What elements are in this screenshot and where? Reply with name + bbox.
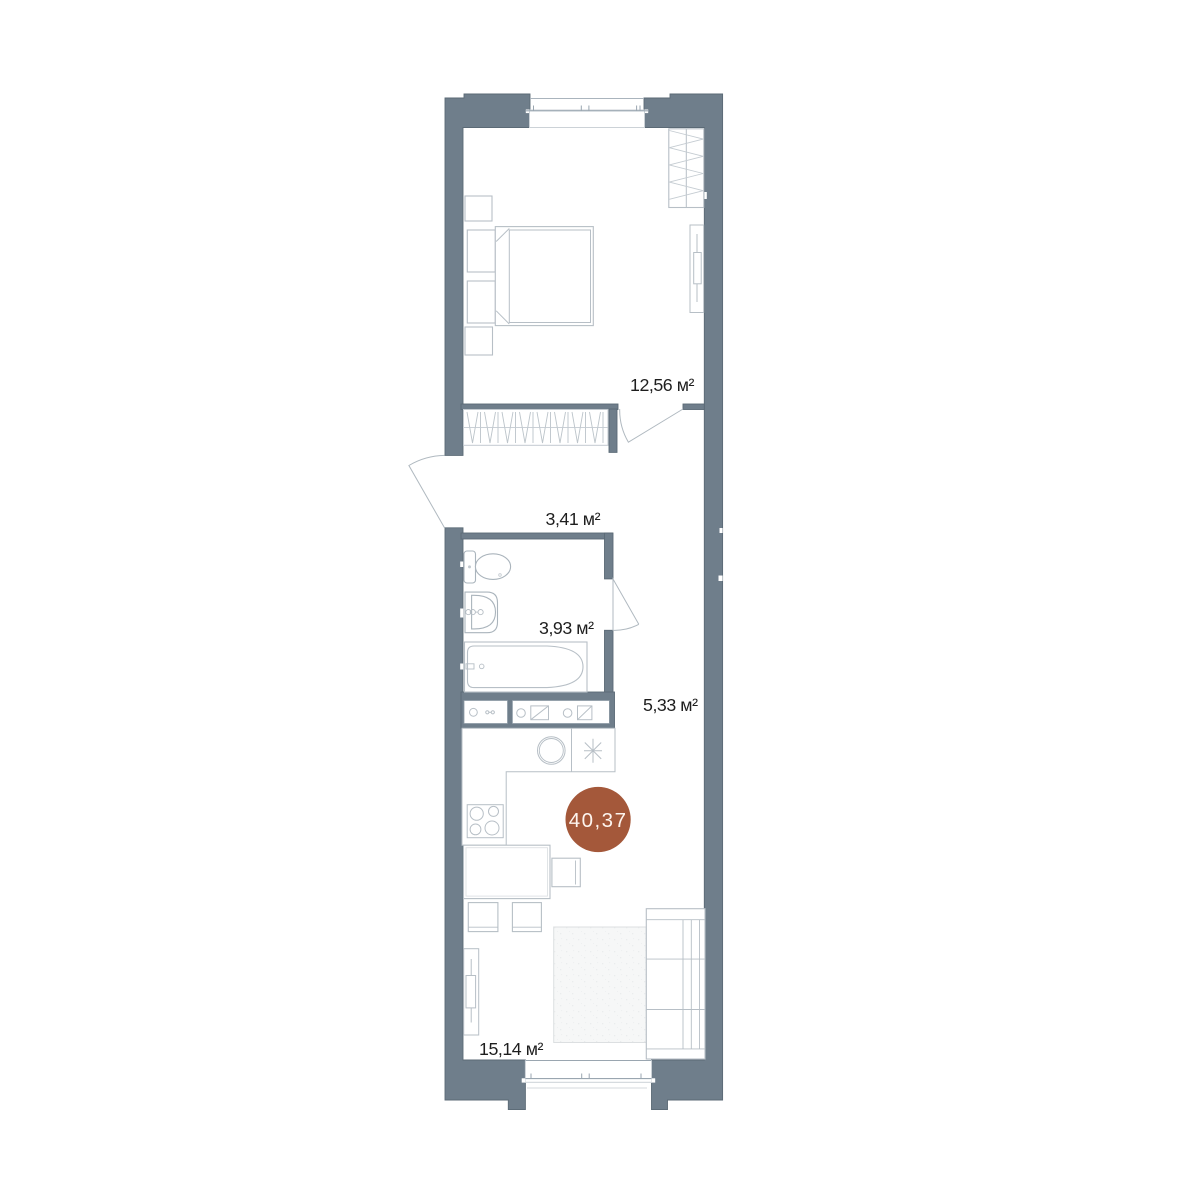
svg-text:15,14 м²: 15,14 м² <box>479 1039 544 1059</box>
svg-text:12,56 м²: 12,56 м² <box>630 375 695 395</box>
svg-text:5,33 м²: 5,33 м² <box>643 695 698 715</box>
svg-text:3,41 м²: 3,41 м² <box>546 509 601 529</box>
svg-text:40,37: 40,37 <box>569 809 628 832</box>
svg-text:3,93 м²: 3,93 м² <box>539 618 594 638</box>
